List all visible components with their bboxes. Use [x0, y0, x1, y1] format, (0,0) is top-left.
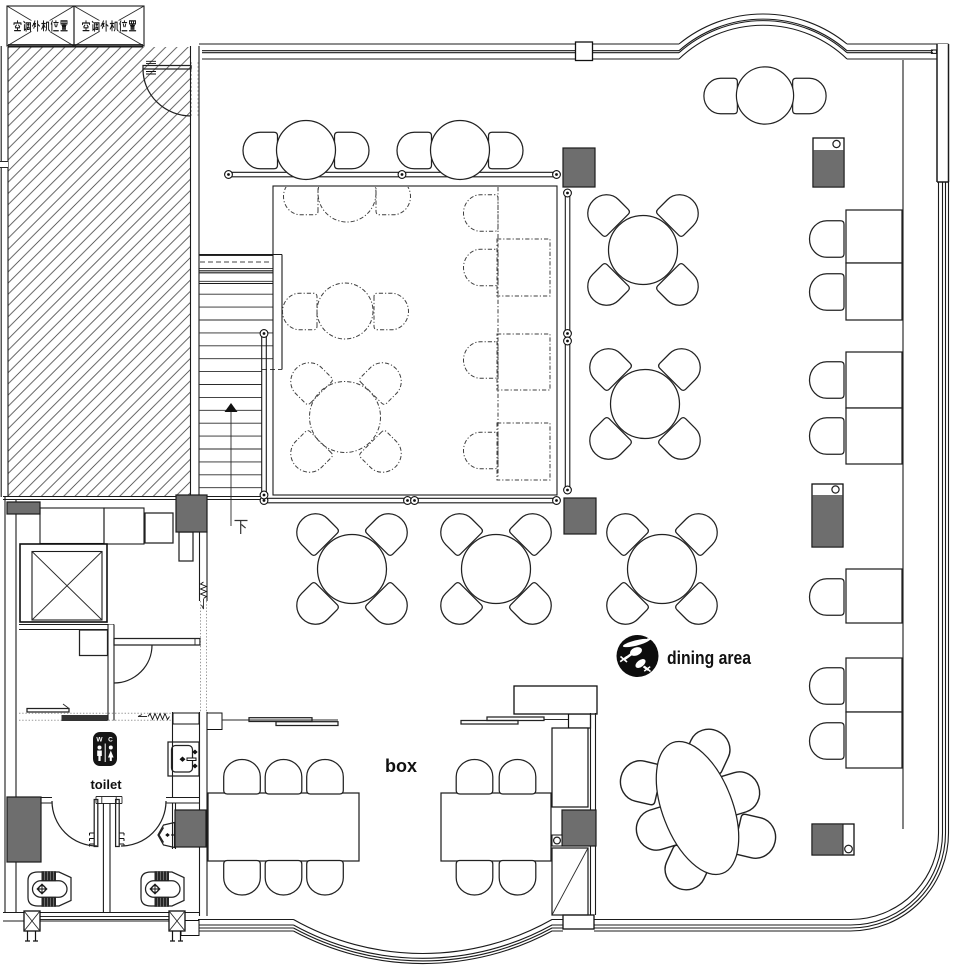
svg-text:C: C	[108, 737, 113, 744]
svg-text:toilet: toilet	[90, 777, 122, 792]
svg-text:W: W	[96, 737, 103, 744]
svg-text:box: box	[385, 756, 417, 776]
svg-text:dining area: dining area	[667, 648, 752, 668]
